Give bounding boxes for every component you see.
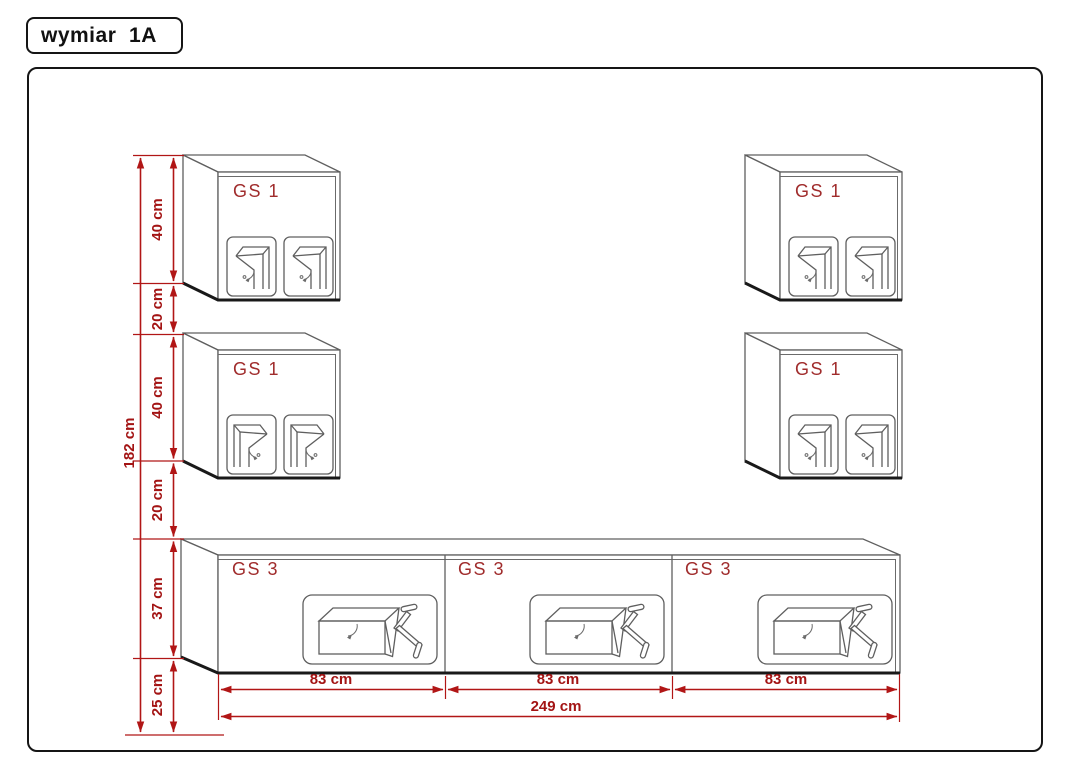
wall-cabinet-body: [183, 155, 340, 300]
dimension-label: 20 cm: [149, 288, 166, 331]
wall-cabinet-bottom-right: GS 1: [745, 333, 902, 478]
dimension-label: 25 cm: [149, 674, 166, 717]
wall-cabinet-bottom-left: GS 1: [183, 333, 340, 478]
unit-label: GS 3: [232, 559, 279, 579]
dimension-label-total-width: 249 cm: [531, 698, 582, 715]
unit-label: GS 1: [233, 181, 280, 201]
horizontal-dimensions: 83 cm 83 cm 83 cm 249 cm: [219, 671, 900, 722]
dimension-label-total-height: 182 cm: [121, 418, 138, 469]
dimension-label: 40 cm: [149, 198, 166, 241]
tv-row-top-face: [181, 539, 900, 555]
unit-label: GS 3: [458, 559, 505, 579]
wall-cabinet-body: [745, 155, 902, 300]
dimension-label: 83 cm: [765, 671, 808, 688]
dimension-label: 83 cm: [310, 671, 353, 688]
title-box: wymiar 1A: [26, 17, 183, 54]
unit-label: GS 1: [233, 359, 280, 379]
unit-label: GS 1: [795, 181, 842, 201]
wall-cabinet-body: [745, 333, 902, 478]
unit-label: GS 1: [795, 359, 842, 379]
dimension-label: 83 cm: [537, 671, 580, 688]
dimension-diagram-page: wymiar 1A: [0, 0, 1090, 782]
unit-label: GS 3: [685, 559, 732, 579]
wall-cabinet-top-left: GS 1: [183, 155, 340, 300]
page-title: wymiar 1A: [28, 24, 157, 48]
wall-cabinet-top-right: GS 1: [745, 155, 902, 300]
dimension-label: 20 cm: [149, 479, 166, 522]
tv-row-side-face: [181, 539, 218, 673]
diagram-svg: GS 1 GS 1 GS 1 GS 1: [0, 0, 1090, 782]
dimension-label: 37 cm: [149, 577, 166, 620]
tv-cabinet-row: GS 3 GS 3 GS 3: [181, 539, 900, 673]
dimension-label: 40 cm: [149, 376, 166, 419]
